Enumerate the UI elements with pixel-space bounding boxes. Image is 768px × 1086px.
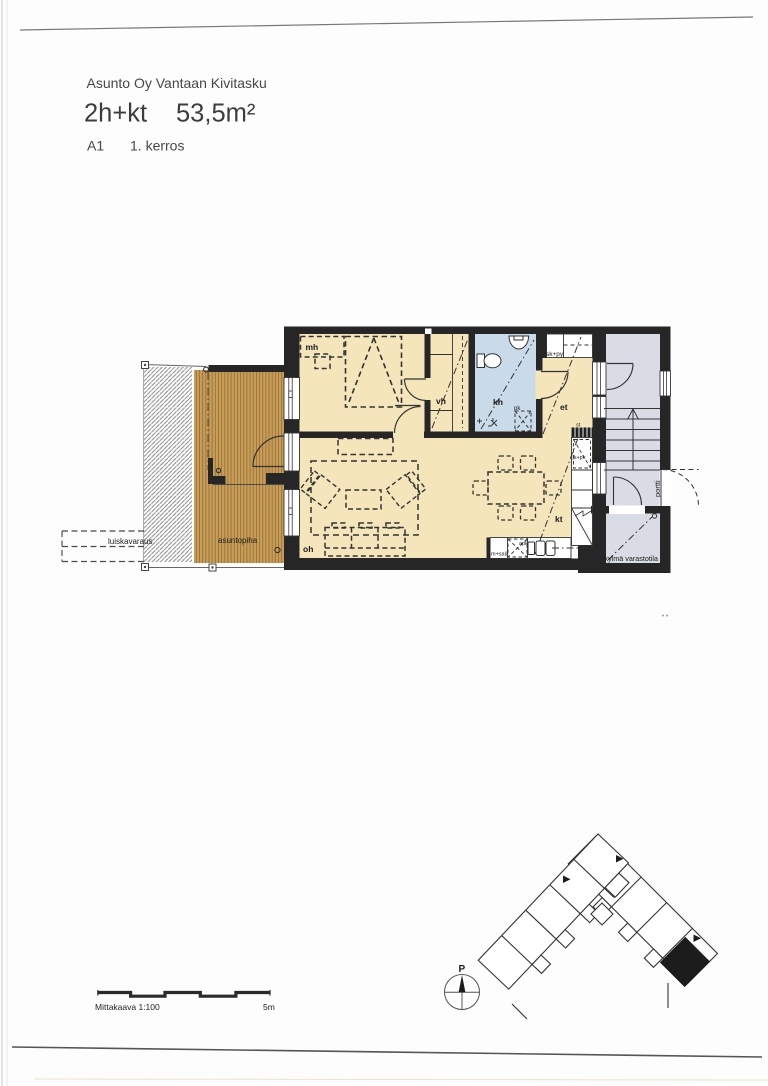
svg-text:jk+pk: jk+pk: [572, 455, 586, 461]
svg-text:mh: mh: [306, 342, 319, 352]
svg-text:5m: 5m: [263, 1002, 275, 1012]
svg-text:et: et: [560, 402, 568, 412]
svg-text:oh: oh: [303, 544, 313, 554]
svg-text:luiskavaraus: luiskavaraus: [108, 537, 152, 546]
svg-text:st: st: [576, 423, 581, 429]
svg-text:kylmä varastotila: kylmä varastotila: [605, 554, 659, 563]
svg-text:Mittakaava 1:100: Mittakaava 1:100: [95, 1002, 160, 1012]
svg-text:apk: apk: [519, 541, 528, 547]
svg-text:Asunto Oy Vantaan Kivitasku: Asunto Oy Vantaan Kivitasku: [87, 75, 267, 91]
svg-text:portti: portti: [653, 480, 662, 497]
svg-text:kh: kh: [493, 397, 503, 407]
svg-text:sk+py: sk+py: [546, 351, 564, 358]
svg-text:P: P: [459, 964, 466, 975]
svg-text:A1: A1: [87, 138, 104, 154]
svg-text:vh: vh: [436, 396, 446, 406]
svg-text:kt: kt: [555, 514, 563, 524]
svg-text:pk: pk: [514, 406, 521, 412]
svg-text:2h+kt: 2h+kt: [84, 100, 147, 128]
svg-text:53,5m²: 53,5m²: [176, 100, 255, 128]
svg-text:1. kerros: 1. kerros: [130, 138, 184, 154]
svg-text:asuntopiha: asuntopiha: [218, 536, 258, 545]
svg-text:m+sali: m+sali: [491, 552, 507, 558]
